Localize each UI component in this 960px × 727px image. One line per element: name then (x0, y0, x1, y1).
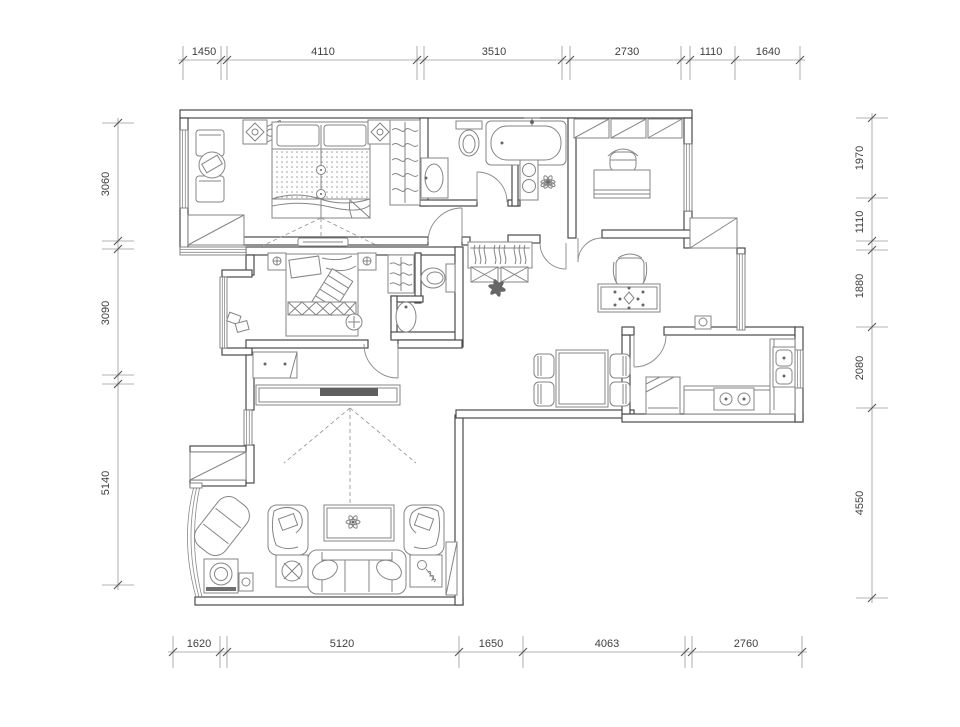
bay-stool (227, 312, 249, 332)
double-bed (272, 122, 370, 218)
dim-label: 3060 (100, 172, 112, 196)
dimension-left: 3060 3090 5140 (100, 118, 134, 590)
dim-label: 4063 (595, 638, 619, 650)
dim-label: 1970 (854, 146, 866, 170)
dim-label: 2080 (854, 356, 866, 380)
nightstand2-left (268, 253, 286, 270)
window-alcove-south (180, 247, 246, 255)
dim-label: 5120 (330, 638, 354, 650)
tv-icon (320, 388, 378, 396)
washing-machine (204, 559, 238, 593)
dimension-top: 1450 4110 3510 2730 1110 1640 (178, 46, 805, 80)
coffee-table (324, 505, 394, 541)
sitting-chair-2 (196, 176, 224, 202)
dim-label: 1110 (700, 46, 723, 58)
door-bedroom2 (364, 344, 398, 378)
dim-label: 2760 (734, 638, 758, 650)
armchair-left (268, 505, 308, 555)
door-entry (540, 243, 566, 269)
tv-wall (253, 352, 416, 504)
armchair-right (404, 505, 444, 555)
kitchen-sink (773, 347, 795, 387)
window-bedroom2-bay (220, 277, 227, 348)
nightstand2-right (358, 253, 376, 270)
dim-label: 1880 (854, 274, 866, 298)
fridge (646, 377, 680, 414)
door-master-bedroom (428, 208, 462, 242)
lamp-table-right (410, 555, 442, 587)
dim-label: 4550 (854, 491, 866, 515)
dim-label: 1640 (756, 46, 780, 58)
nightstand-left (243, 120, 267, 144)
entry-bench-2 (501, 267, 528, 282)
bedroom-2 (227, 253, 414, 336)
dim-label: 3090 (100, 301, 112, 325)
dim-label: 3510 (482, 46, 506, 58)
boiler-vent (695, 316, 711, 329)
window-master-west (180, 130, 188, 208)
entry-coat-closet (468, 242, 532, 268)
ac-platform-west (190, 452, 246, 480)
round-tea-table (199, 152, 225, 178)
laundry-column (520, 160, 538, 200)
living-room (189, 491, 444, 594)
desk-chair (608, 149, 638, 172)
entry-hall (468, 242, 532, 297)
door-panel-living-east (446, 542, 457, 595)
dim-label: 5140 (100, 471, 112, 495)
bathtub (486, 118, 566, 165)
window-study-east (684, 144, 692, 211)
study-room (574, 119, 682, 198)
study-desk (594, 170, 650, 198)
dim-label: 1650 (479, 638, 503, 650)
floor-plan-drawing: 1450 4110 3510 2730 1110 1640 1620 5120 … (0, 0, 960, 727)
window-dining-east (737, 254, 745, 330)
sink-1 (421, 158, 448, 198)
small-cart (239, 573, 253, 591)
study-cabinets (574, 119, 682, 138)
nightstand-right (368, 120, 392, 144)
door-study (578, 238, 602, 262)
bed2 (286, 254, 362, 336)
accent-chair (613, 254, 646, 286)
dining-area (534, 254, 660, 407)
chaise-lounge (189, 491, 254, 560)
stove (714, 388, 754, 410)
dim-label: 2730 (615, 46, 639, 58)
sink-2 (396, 302, 416, 332)
ac-platform-northwest (188, 215, 244, 245)
door-kitchen (634, 335, 666, 367)
tv-projection-dashes (284, 408, 416, 504)
ac-platform-northeast (690, 218, 737, 248)
door-bathroom1 (477, 172, 507, 202)
master-wardrobe (390, 120, 420, 205)
dim-label: 1620 (187, 638, 211, 650)
dining-table (556, 350, 608, 407)
sofa (308, 550, 406, 594)
toilet-1 (456, 121, 482, 156)
dim-label: 4110 (311, 46, 335, 58)
window-tv-wall (244, 410, 252, 445)
entry-bench-1 (471, 267, 498, 282)
window-kitchen-east (795, 350, 803, 388)
bathroom-1 (421, 118, 566, 200)
console-table (598, 284, 660, 312)
master-tv-cabinet (298, 238, 348, 246)
floor-plan-canvas: 1450 4110 3510 2730 1110 1640 1620 5120 … (0, 0, 960, 727)
plant-bathroom (540, 175, 556, 190)
dimension-right: 1970 1110 1880 2080 4550 (854, 113, 888, 603)
dim-label: 1110 (854, 211, 866, 234)
toilet-2 (421, 264, 455, 292)
side-table-left (276, 555, 308, 587)
wardrobe2 (388, 255, 414, 293)
dimension-bottom: 1620 5120 1650 4063 2760 (168, 636, 807, 668)
low-cabinet (253, 352, 297, 378)
tv-stand (256, 385, 400, 405)
dim-label: 1450 (192, 46, 216, 58)
